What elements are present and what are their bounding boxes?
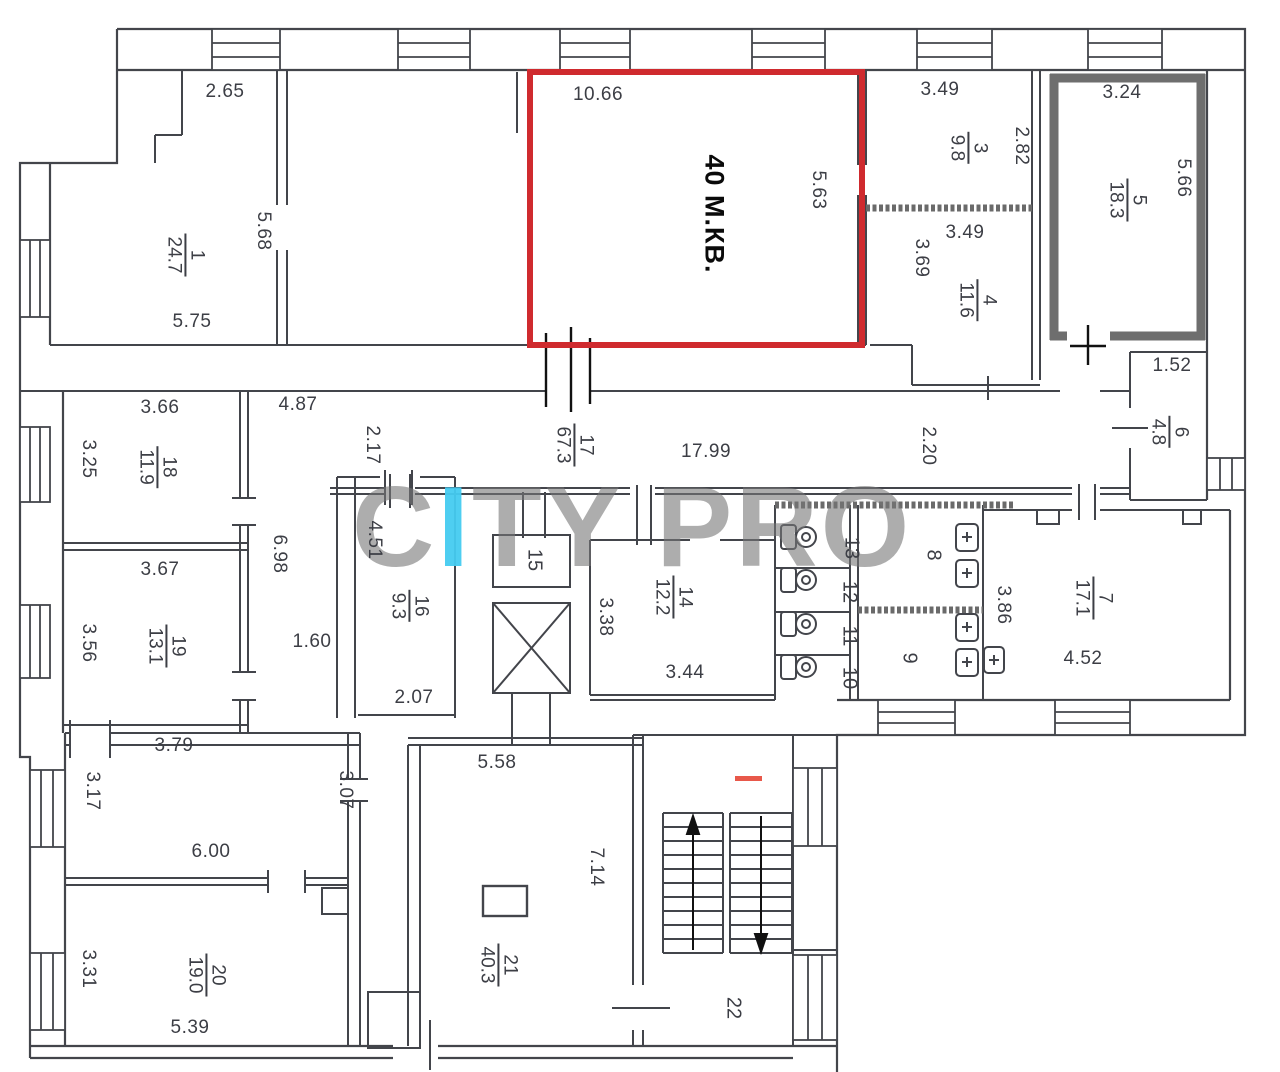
room-number-label: 12 bbox=[838, 581, 861, 603]
dimension-label: 5.68 bbox=[252, 212, 274, 251]
room-area: 12.2 bbox=[652, 576, 675, 619]
room-number: 19 bbox=[168, 632, 188, 659]
room-area: 19.0 bbox=[185, 954, 208, 997]
floor-plan: CITY PRO 40 М.КВ. 2.6510.663.493.245.753… bbox=[0, 0, 1280, 1072]
dimension-label: 5.58 bbox=[478, 752, 517, 774]
watermark: CITY PRO bbox=[352, 462, 912, 593]
dimension-label: 3.25 bbox=[77, 440, 99, 479]
room-area: 17.1 bbox=[1072, 577, 1095, 620]
room-label: 39.8 bbox=[947, 132, 990, 164]
room-number: 3 bbox=[970, 140, 990, 157]
room-area: 13.1 bbox=[145, 625, 168, 668]
dimension-label: 7.14 bbox=[585, 848, 607, 887]
window-top bbox=[212, 29, 1162, 70]
room-number-label: 15 bbox=[523, 549, 546, 571]
room-label: 124.7 bbox=[164, 234, 207, 277]
room-number-label: 13 bbox=[840, 537, 863, 559]
room-number: 4 bbox=[979, 292, 999, 309]
room-label: 717.1 bbox=[1072, 577, 1115, 620]
room-area: 67.3 bbox=[553, 424, 576, 467]
room-label: 518.3 bbox=[1106, 179, 1149, 222]
room-label: 2019.0 bbox=[185, 954, 228, 997]
dimension-label: 3.66 bbox=[141, 397, 180, 419]
washbasin-icon bbox=[984, 647, 1004, 673]
dimension-label: 2.20 bbox=[917, 427, 939, 466]
room-label: 169.3 bbox=[388, 590, 431, 622]
dimension-label: 3.49 bbox=[921, 79, 960, 101]
room-label: 1811.9 bbox=[136, 446, 179, 488]
washbasin-icon bbox=[956, 649, 978, 676]
room-number: 21 bbox=[500, 951, 520, 978]
room-number: 5 bbox=[1129, 192, 1149, 209]
room-number: 1 bbox=[187, 247, 207, 264]
room-number: 20 bbox=[208, 961, 228, 988]
window-bottom bbox=[878, 700, 1130, 735]
dimension-label: 6.00 bbox=[192, 841, 231, 863]
dimension-label: 5.63 bbox=[807, 171, 829, 210]
dimension-label: 3.49 bbox=[946, 222, 985, 244]
dimension-label: 3.07 bbox=[334, 771, 356, 810]
room-number: 18 bbox=[159, 453, 179, 480]
washbasin-icon bbox=[956, 614, 978, 641]
dimension-label: 2.17 bbox=[361, 426, 383, 465]
room-number-label: 22 bbox=[722, 997, 745, 1019]
toilet-icon bbox=[781, 655, 816, 679]
dimension-label: 2.07 bbox=[395, 687, 434, 709]
dimension-label: 2.65 bbox=[206, 81, 245, 103]
room-area: 40.3 bbox=[477, 944, 500, 987]
dimension-label: 3.67 bbox=[141, 559, 180, 581]
room-number-label: 10 bbox=[838, 667, 861, 689]
room-label: 1913.1 bbox=[145, 625, 188, 668]
room-number: 7 bbox=[1095, 590, 1115, 607]
watermark-cyan-i: I bbox=[437, 464, 472, 591]
room-area: 18.3 bbox=[1106, 179, 1129, 222]
dimension-label: 3.69 bbox=[910, 239, 932, 278]
stair-red-dash bbox=[735, 776, 762, 781]
room-label: 1412.2 bbox=[652, 576, 695, 619]
dimension-label: 5.39 bbox=[171, 1017, 210, 1039]
dimension-label: 3.79 bbox=[155, 735, 194, 757]
washbasin-icon bbox=[956, 524, 978, 551]
room-label: 64.8 bbox=[1148, 416, 1191, 448]
room-number: 14 bbox=[675, 583, 695, 610]
toilet-icon bbox=[781, 612, 816, 636]
room-area: 9.3 bbox=[388, 590, 411, 622]
dimension-label: 4.87 bbox=[279, 394, 318, 416]
room-number: 17 bbox=[576, 431, 596, 458]
room-label: 1767.3 bbox=[553, 424, 596, 467]
washbasin-icon bbox=[956, 560, 978, 587]
dimension-label: 5.75 bbox=[173, 311, 212, 333]
dimension-label: 3.44 bbox=[666, 662, 705, 684]
dimension-label: 2.82 bbox=[1010, 127, 1032, 166]
window-left bbox=[20, 240, 65, 1030]
dimension-label: 4.52 bbox=[1064, 648, 1103, 670]
dimension-label: 3.24 bbox=[1103, 82, 1142, 104]
watermark-text: TY PRO bbox=[472, 464, 912, 591]
dimension-label: 4.51 bbox=[363, 521, 385, 560]
dimension-label: 3.17 bbox=[81, 772, 103, 811]
dimension-label: 3.31 bbox=[77, 950, 99, 989]
dimension-label: 3.38 bbox=[594, 598, 616, 637]
dimension-label: 1.52 bbox=[1153, 355, 1192, 377]
room-number-label: 8 bbox=[922, 549, 945, 560]
room-area: 11.9 bbox=[136, 446, 159, 488]
room-number-label: 11 bbox=[838, 626, 861, 647]
room-number: 6 bbox=[1171, 424, 1191, 441]
dimension-label: 17.99 bbox=[681, 441, 731, 463]
dimension-label: 5.66 bbox=[1172, 159, 1194, 198]
room-area: 4.8 bbox=[1148, 416, 1171, 448]
room-area: 9.8 bbox=[947, 132, 970, 164]
room-label: 411.6 bbox=[956, 279, 999, 321]
dimension-label: 6.98 bbox=[268, 535, 290, 574]
red-room-area-text: 40 М.КВ. bbox=[699, 154, 730, 273]
dimension-label: 3.56 bbox=[77, 624, 99, 663]
room-area: 11.6 bbox=[956, 279, 979, 321]
door-marks bbox=[546, 325, 1106, 412]
room-number-label: 9 bbox=[898, 652, 921, 663]
column bbox=[483, 886, 527, 916]
room-label: 2140.3 bbox=[477, 944, 520, 987]
dimension-label: 1.60 bbox=[293, 631, 332, 653]
dimension-label: 10.66 bbox=[573, 84, 623, 106]
dimension-label: 3.86 bbox=[992, 586, 1014, 625]
room-number: 16 bbox=[411, 592, 431, 619]
room-area: 24.7 bbox=[164, 234, 187, 277]
